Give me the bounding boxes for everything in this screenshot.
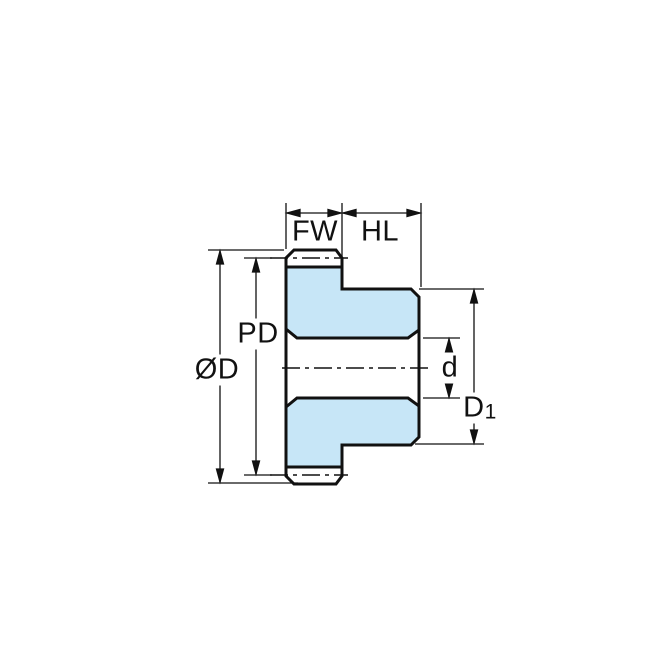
label-bore-diameter: d: [439, 353, 462, 384]
label-hub-diameter-main: D: [463, 392, 484, 424]
hl-arrow-left: [343, 210, 356, 217]
od-arrow-top: [217, 251, 224, 264]
od-arrow-bottom: [217, 469, 224, 482]
pd-arrow-bottom: [253, 461, 260, 474]
label-outside-diameter: ØD: [192, 355, 243, 386]
label-hub-diameter: D1: [460, 393, 500, 424]
pd-arrow-top: [253, 259, 260, 272]
hl-arrow-right: [407, 210, 420, 217]
d-arrow-top: [446, 339, 453, 352]
label-pitch-diameter: PD: [234, 319, 281, 350]
gear-cross-section: [286, 250, 419, 484]
d1-arrow-bottom: [471, 430, 478, 443]
label-hub-length: HL: [358, 217, 402, 248]
label-face-width: FW: [289, 217, 341, 248]
dim-pitch-diameter: [244, 258, 272, 475]
gear-body-lower-section: [286, 398, 419, 467]
d-arrow-bottom: [446, 384, 453, 397]
label-hub-diameter-subscript: 1: [485, 401, 497, 424]
d1-arrow-top: [471, 290, 478, 303]
gear-body-upper-section: [286, 267, 419, 338]
technical-drawing-canvas: FW HL PD ØD d D1: [0, 0, 670, 670]
gear-drawing-svg: [0, 0, 670, 670]
